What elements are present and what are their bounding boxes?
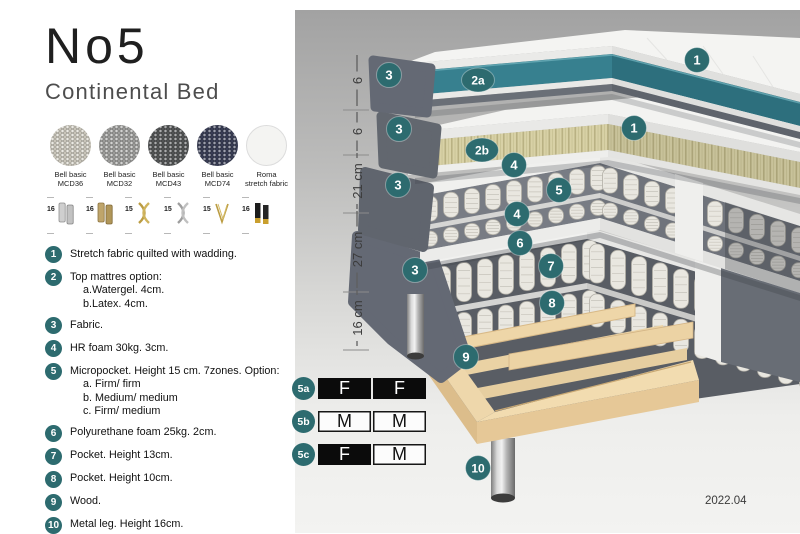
leg-option: 16 <box>47 197 80 234</box>
callout-3: 3 <box>387 117 412 142</box>
leg-option: 15 <box>203 197 236 234</box>
firmness-row-label: 5c <box>292 443 315 466</box>
fabric-swatch-label: Bell basicMCD74 <box>201 170 233 189</box>
fabric-swatch-label: Bell basicMCD43 <box>152 170 184 189</box>
metal-leg-front <box>491 438 515 503</box>
spec-item: 4HR foam 30kg. 3cm. <box>45 340 287 357</box>
spec-item-text: Wood. <box>70 494 101 509</box>
firmness-row: 5bMM <box>292 410 426 433</box>
leg-height-label: 15 <box>164 206 172 213</box>
ruler-label: 16 cm <box>350 300 365 335</box>
leg-height-label: 15 <box>125 206 133 213</box>
divider <box>242 233 249 234</box>
spec-item-subtext: a. Firm/ firm <box>83 378 279 392</box>
spec-item-number: 6 <box>45 425 62 442</box>
spec-item: 1Stretch fabric quilted with wadding. <box>45 246 287 263</box>
spec-item-number: 7 <box>45 448 62 465</box>
divider <box>125 233 132 234</box>
fabric-swatch: Bell basicMCD43 <box>145 125 192 189</box>
svg-text:1: 1 <box>630 121 637 136</box>
version-label: 2022.04 <box>705 495 747 507</box>
divider <box>203 233 210 234</box>
spec-item-number: 10 <box>45 517 62 534</box>
firmness-cell: M <box>373 444 426 465</box>
ruler-label: 27 cm <box>350 232 365 267</box>
leg-cylinder-brass-icon <box>95 200 115 231</box>
svg-text:3: 3 <box>394 178 401 193</box>
firmness-cell: F <box>318 444 371 465</box>
callout-6: 6 <box>508 231 533 256</box>
spec-item-text: Pocket. Height 10cm. <box>70 471 173 486</box>
callout-1: 1 <box>622 116 647 141</box>
leg-height-label: 16 <box>47 206 55 213</box>
fabric-swatch-circle <box>246 125 287 166</box>
divider <box>242 197 249 198</box>
svg-text:3: 3 <box>385 68 392 83</box>
callout-4: 4 <box>505 202 530 227</box>
spec-item-number: 2 <box>45 269 62 286</box>
spec-item: 9Wood. <box>45 494 287 511</box>
firmness-row-label: 5b <box>292 410 315 433</box>
fabric-swatch: Bell basicMCD74 <box>194 125 241 189</box>
svg-text:10: 10 <box>471 462 485 476</box>
metal-leg-back <box>407 294 424 360</box>
spec-item-text: Polyurethane foam 25kg. 2cm. <box>70 425 216 440</box>
leg-hairpin-gold-icon <box>212 200 232 231</box>
svg-text:6: 6 <box>516 236 523 251</box>
firmness-row: 5cFM <box>292 443 426 466</box>
spec-item-number: 9 <box>45 494 62 511</box>
leg-height-label: 16 <box>86 206 94 213</box>
divider <box>47 233 54 234</box>
divider <box>125 197 132 198</box>
leg-option: 16 <box>242 197 275 234</box>
fabric-swatch: Bell basicMCD36 <box>47 125 94 189</box>
callout-5: 5 <box>547 178 572 203</box>
fabric-swatch-circle <box>50 125 91 166</box>
leg-cross-gold-icon <box>134 200 154 231</box>
svg-text:4: 4 <box>510 158 518 173</box>
callout-1: 1 <box>685 48 710 73</box>
spec-item-number: 1 <box>45 246 62 263</box>
spec-item-text: HR foam 30kg. 3cm. <box>70 340 168 355</box>
spec-list: 1Stretch fabric quilted with wadding.2To… <box>45 246 287 534</box>
spec-item-text: Pocket. Height 13cm. <box>70 448 173 463</box>
firmness-row-label: 5a <box>292 377 315 400</box>
spec-item-number: 4 <box>45 340 62 357</box>
firmness-cell: M <box>373 411 426 432</box>
divider <box>86 197 93 198</box>
firmness-cell: F <box>318 378 371 399</box>
callout-4: 4 <box>502 153 527 178</box>
leg-height-label: 16 <box>242 206 250 213</box>
ruler-label: 6 <box>350 77 365 84</box>
callout-10: 10 <box>466 456 491 481</box>
product-subtitle: Continental Bed <box>45 79 295 105</box>
leg-cylinder-silver-icon <box>56 200 76 231</box>
spec-item: 6Polyurethane foam 25kg. 2cm. <box>45 425 287 442</box>
callout-8: 8 <box>540 291 565 316</box>
zone-divider <box>675 174 703 262</box>
firmness-row: 5aFF <box>292 377 426 400</box>
callout-2b: 2b <box>466 138 499 162</box>
spec-item-text: Metal leg. Height 16cm. <box>70 517 183 532</box>
ruler-label: 6 <box>350 128 365 135</box>
callout-3: 3 <box>403 258 428 283</box>
leg-option: 16 <box>86 197 119 234</box>
divider <box>86 233 93 234</box>
spec-item-text: Fabric. <box>70 317 103 332</box>
ruler-label: 21 cm <box>350 163 365 198</box>
callout-3: 3 <box>377 63 402 88</box>
spec-item-subtext: c. Firm/ medium <box>83 405 279 419</box>
fabric-swatch-circle <box>148 125 189 166</box>
product-title: No5 <box>45 20 295 73</box>
leg-cylinder-black-gold-icon <box>251 200 271 231</box>
leg-option: 15 <box>125 197 158 234</box>
callout-9: 9 <box>454 345 479 370</box>
spec-item: 8Pocket. Height 10cm. <box>45 471 287 488</box>
spec-item: 2Top mattres option:a.Watergel. 4cm.b.La… <box>45 269 287 311</box>
divider <box>203 197 210 198</box>
fabric-swatch-circle <box>99 125 140 166</box>
fabric-swatch: Romastretch fabric <box>243 125 290 189</box>
fabric-swatch-label: Bell basicMCD36 <box>54 170 86 189</box>
firmness-bar: MM <box>318 411 426 432</box>
svg-text:2b: 2b <box>475 144 489 158</box>
svg-text:2a: 2a <box>471 74 485 88</box>
info-panel: No5 Continental Bed Bell basicMCD36Bell … <box>0 0 295 533</box>
fabric-swatch: Bell basicMCD32 <box>96 125 143 189</box>
spec-item: 7Pocket. Height 13cm. <box>45 448 287 465</box>
fabric-swatch-label: Bell basicMCD32 <box>103 170 135 189</box>
divider <box>164 197 171 198</box>
callout-3: 3 <box>386 173 411 198</box>
svg-text:1: 1 <box>693 53 700 68</box>
spec-item-subtext: b. Medium/ medium <box>83 392 279 406</box>
spec-item-text: Micropocket. Height 15 cm. 7zones. Optio… <box>70 363 279 419</box>
callout-2a: 2a <box>462 68 495 92</box>
divider <box>47 197 54 198</box>
svg-text:8: 8 <box>548 296 555 311</box>
product-sheet: No5 Continental Bed Bell basicMCD36Bell … <box>0 0 800 533</box>
svg-text:4: 4 <box>513 207 521 222</box>
leg-cross-silver-icon <box>173 200 193 231</box>
spec-item: 3Fabric. <box>45 317 287 334</box>
spec-item-text: Top mattres option:a.Watergel. 4cm.b.Lat… <box>70 269 164 311</box>
spec-item-text: Stretch fabric quilted with wadding. <box>70 246 237 261</box>
firmness-cell: M <box>318 411 371 432</box>
firmness-bar: FF <box>318 378 426 399</box>
spec-item-subtext: a.Watergel. 4cm. <box>83 284 164 298</box>
fabric-swatches: Bell basicMCD36Bell basicMCD32Bell basic… <box>47 125 295 189</box>
spec-item: 10Metal leg. Height 16cm. <box>45 517 287 534</box>
fabric-swatch-circle <box>197 125 238 166</box>
leg-option: 15 <box>164 197 197 234</box>
spec-item: 5Micropocket. Height 15 cm. 7zones. Opti… <box>45 363 287 419</box>
svg-text:9: 9 <box>462 350 469 365</box>
svg-text:5: 5 <box>555 183 562 198</box>
spec-item-number: 8 <box>45 471 62 488</box>
divider <box>164 233 171 234</box>
leg-options: 161615151516 <box>47 197 295 234</box>
callout-7: 7 <box>539 254 564 279</box>
diagram-panel: 6621 cm27 cm16 cm 132a132b43546378910 5a… <box>295 10 800 533</box>
svg-text:7: 7 <box>547 259 554 274</box>
leg-height-label: 15 <box>203 206 211 213</box>
spec-item-number: 5 <box>45 363 62 380</box>
firmness-bar: FM <box>318 444 426 465</box>
spec-item-subtext: b.Latex. 4cm. <box>83 298 164 312</box>
svg-text:3: 3 <box>411 263 418 278</box>
fabric-swatch-label: Romastretch fabric <box>245 170 288 189</box>
svg-text:3: 3 <box>395 122 402 137</box>
firmness-cell: F <box>373 378 426 399</box>
spec-item-number: 3 <box>45 317 62 334</box>
